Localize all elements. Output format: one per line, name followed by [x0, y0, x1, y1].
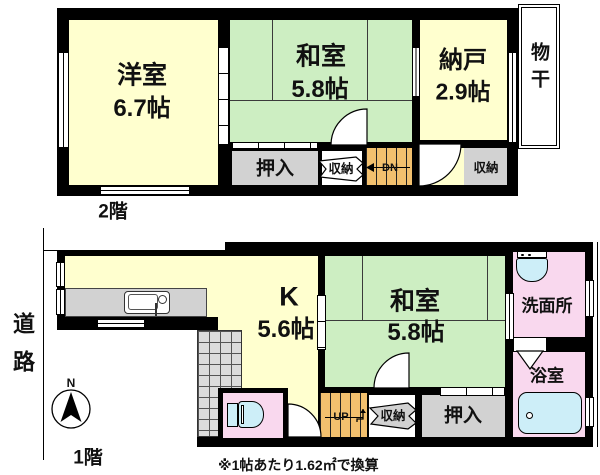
sliding-door [218, 47, 229, 145]
stairs-down-arrow-icon [366, 163, 374, 172]
room-washroom-label: 洗面所 [522, 298, 573, 315]
window [585, 280, 594, 317]
folding-door-icon [513, 351, 547, 371]
toilet-room [218, 388, 288, 443]
stairs-down-label: DN [382, 162, 398, 174]
closet-1f-label: 押入 [444, 407, 482, 426]
storage-1f-label: 収納 [380, 410, 405, 423]
room-nando-name: 納戸 [439, 49, 487, 73]
floor2-label: 2階 [98, 203, 128, 222]
door-arc [416, 144, 462, 189]
room-tatami-1f-size: 5.8帖 [387, 321, 444, 345]
room-tatami-2f-name: 和室 [296, 45, 346, 70]
closet-2f-label: 押入 [256, 160, 294, 179]
road-label: 道路 [11, 312, 33, 388]
wall-step [57, 242, 225, 250]
door-arc [371, 350, 411, 389]
kitchen-counter [65, 288, 207, 317]
door-arc [329, 105, 369, 145]
opening [505, 293, 514, 340]
window [56, 289, 65, 315]
compass-icon: N [49, 377, 93, 433]
window [97, 319, 145, 328]
storage-1f-banner: 収納 [369, 402, 417, 430]
room-nando-size: 2.9帖 [436, 81, 491, 104]
eave-line [597, 242, 598, 447]
floor-plan: 洋室 6.7帖 和室 5.8帖 納戸 2.9帖 押入 収納 DN [0, 0, 600, 475]
storage-mid-banner: 収納 [318, 156, 364, 182]
storage-mid-label: 収納 [328, 163, 353, 176]
storage-right-label: 収納 [473, 162, 498, 175]
sliding-door [440, 387, 505, 396]
window [585, 397, 594, 427]
window [56, 262, 65, 287]
stairs-up-arrow-icon [356, 409, 364, 422]
plot-line-tick [43, 250, 57, 251]
washbasin-icon [516, 251, 550, 285]
plot-line-vertical [43, 228, 44, 460]
folding-door [513, 337, 547, 352]
floor1-label: 1階 [73, 449, 103, 468]
window [100, 186, 190, 195]
scale-note: ※1帖あたり1.62㎡で換算 [218, 455, 379, 475]
door-arc [286, 402, 322, 439]
stairs-up-label: UP [333, 411, 348, 423]
bathtub-icon [518, 392, 582, 434]
sliding-door [317, 295, 326, 350]
room-kitchen-name: K [279, 284, 299, 311]
kitchen-sink-icon [124, 291, 170, 314]
room-western-name: 洋室 [117, 64, 167, 89]
room-tatami-2f-size: 5.8帖 [291, 78, 348, 102]
room-western-size: 6.7帖 [113, 97, 170, 121]
window [412, 47, 420, 97]
toilet-icon [227, 401, 267, 429]
drying-balcony-label: 物干 [529, 42, 548, 96]
sliding-door [232, 142, 318, 149]
room-kitchen-size: 5.6帖 [257, 318, 314, 342]
room-tatami-1f-name: 和室 [390, 290, 440, 315]
window [58, 52, 69, 148]
window [508, 52, 517, 143]
